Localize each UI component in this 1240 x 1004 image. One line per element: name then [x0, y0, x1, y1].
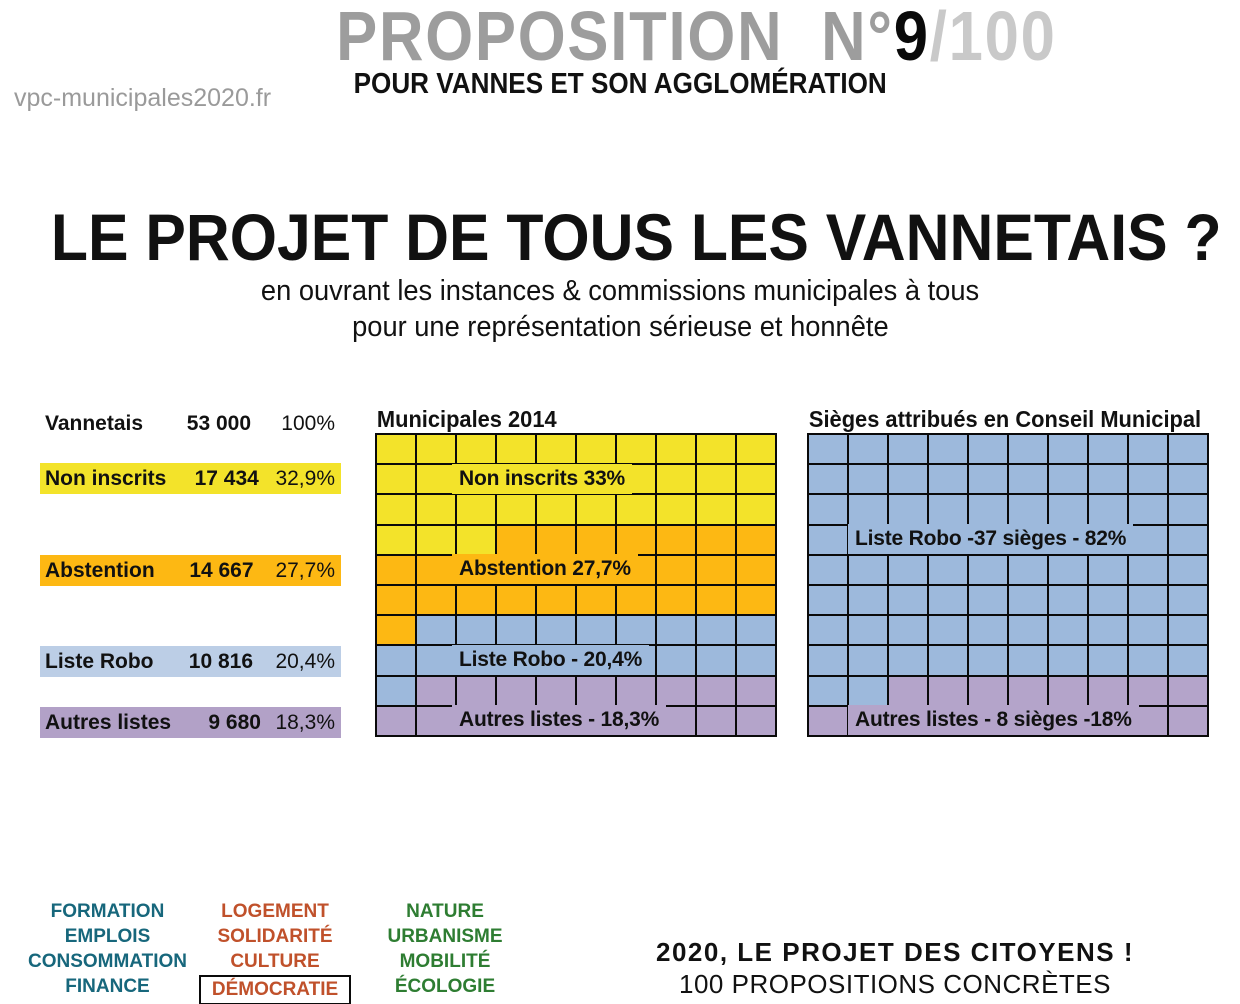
waffle-cell — [416, 555, 456, 585]
waffle-cell — [696, 585, 736, 615]
waffle-cell — [848, 615, 888, 645]
waffle-cell — [1048, 494, 1088, 524]
waffle-cell — [576, 434, 616, 464]
waffle-cell — [1128, 645, 1168, 675]
waffle-cell — [616, 525, 656, 555]
proposition-total: /100 — [930, 0, 1057, 75]
waffle-cell — [456, 494, 496, 524]
waffle-cell — [1048, 555, 1088, 585]
waffle-cell — [928, 615, 968, 645]
waffle-cell — [808, 706, 848, 736]
waffle-cell — [1168, 585, 1208, 615]
waffle-cell — [376, 676, 416, 706]
theme-item-boxed: DÉMOCRATIE — [199, 975, 351, 1004]
waffle-cell — [536, 525, 576, 555]
waffle-cell — [696, 525, 736, 555]
waffle-cell — [416, 494, 456, 524]
waffle-cell — [696, 615, 736, 645]
theme-column-environment: NATUREURBANISMEMOBILITÉÉCOLOGIE — [375, 899, 515, 999]
waffle-cell — [1168, 645, 1208, 675]
waffle-cell — [696, 645, 736, 675]
stat-label: Vannetais — [40, 412, 149, 436]
waffle-cell — [376, 464, 416, 494]
waffle-cell — [376, 615, 416, 645]
stat-label: Non inscrits — [40, 467, 166, 491]
waffle-cell — [1088, 645, 1128, 675]
theme-item: LOGEMENT — [221, 901, 329, 922]
waffle-cell — [1048, 615, 1088, 645]
infographic-poster: PROPOSITION N°9/100 POUR VANNES ET SON A… — [0, 0, 1240, 1004]
waffle-cell — [416, 434, 456, 464]
stat-percent: 27,7% — [254, 559, 341, 583]
waffle-cell — [456, 434, 496, 464]
waffle-cell — [1128, 464, 1168, 494]
waffle-cell — [1008, 645, 1048, 675]
waffle-cell — [888, 645, 928, 675]
theme-item: URBANISME — [387, 926, 502, 947]
waffle-cell — [456, 585, 496, 615]
waffle-cell — [1128, 525, 1168, 555]
website-url: vpc-municipales2020.fr — [14, 85, 271, 112]
waffle-series-label: Abstention 27,7% — [452, 554, 638, 584]
waffle-cell — [1008, 585, 1048, 615]
waffle-cell — [736, 525, 776, 555]
waffle-cell — [1048, 676, 1088, 706]
waffle-cell — [1048, 464, 1088, 494]
waffle-cell — [656, 434, 696, 464]
waffle-cell — [696, 464, 736, 494]
waffle-cell — [536, 615, 576, 645]
theme-column-economy: FORMATIONEMPLOISCONSOMMATIONFINANCE — [25, 899, 190, 999]
waffle-cell — [1008, 464, 1048, 494]
theme-column-society: LOGEMENTSOLIDARITÉCULTUREDÉMOCRATIE — [190, 899, 360, 1004]
waffle-cell — [1048, 585, 1088, 615]
waffle-cell — [736, 676, 776, 706]
stats-header-row: Vannetais53 000100% — [40, 408, 341, 439]
stat-percent: 32,9% — [259, 467, 341, 491]
waffle-cell — [1008, 676, 1048, 706]
waffle-cell — [1008, 555, 1048, 585]
waffle-cell — [928, 434, 968, 464]
waffle-chart-sieges-conseil-municipal: Sièges attribués en Conseil Municipal Li… — [807, 406, 1209, 737]
waffle-cell — [1128, 676, 1168, 706]
waffle-cell — [888, 585, 928, 615]
waffle-cell — [736, 645, 776, 675]
waffle-cell — [1088, 555, 1128, 585]
waffle-cell — [1048, 434, 1088, 464]
waffle-cell — [736, 706, 776, 736]
waffle-cell — [496, 525, 536, 555]
waffle-cell — [1088, 494, 1128, 524]
stat-value: 17 434 — [166, 467, 258, 491]
theme-item: MOBILITÉ — [400, 951, 491, 972]
page-subtitle-line1: en ouvrant les instances & commissions m… — [0, 274, 1240, 308]
waffle-cell — [496, 615, 536, 645]
waffle-cell — [968, 494, 1008, 524]
waffle-cell — [496, 494, 536, 524]
waffle-cell — [928, 645, 968, 675]
theme-item: NATURE — [406, 901, 484, 922]
waffle-chart-municipales-2014: Municipales 2014 Non inscrits 33%Abstent… — [375, 406, 777, 737]
waffle-cell — [416, 464, 456, 494]
waffle-cell — [1088, 464, 1128, 494]
waffle-cell — [1128, 585, 1168, 615]
waffle-cell — [616, 676, 656, 706]
theme-item: FORMATION — [51, 901, 165, 922]
waffle-cell — [888, 464, 928, 494]
proposition-heading: PROPOSITION N°9/100 — [153, 0, 1240, 72]
footer-slogan: 2020, LE PROJET DES CITOYENS ! 100 PROPO… — [640, 936, 1150, 999]
waffle-cell — [736, 615, 776, 645]
waffle-cell — [416, 706, 456, 736]
waffle-cell — [416, 676, 456, 706]
waffle-cell — [848, 585, 888, 615]
waffle-cell — [696, 706, 736, 736]
theme-item: CULTURE — [230, 951, 319, 972]
waffle-cell — [656, 676, 696, 706]
waffle-cell — [576, 494, 616, 524]
waffle-cell — [1088, 434, 1128, 464]
waffle-cell — [696, 434, 736, 464]
waffle-cell — [888, 615, 928, 645]
waffle-cell — [536, 585, 576, 615]
proposition-prefix: PROPOSITION N° — [336, 0, 894, 75]
waffle-cell — [616, 615, 656, 645]
waffle-cell — [376, 434, 416, 464]
waffle-cell — [1088, 676, 1128, 706]
stat-value: 9 680 — [171, 711, 261, 735]
page-title: LE PROJET DE TOUS LES VANNETAIS ? — [0, 203, 1240, 271]
theme-item: ÉCOLOGIE — [395, 976, 495, 997]
waffle-cell — [808, 676, 848, 706]
waffle-cell — [808, 615, 848, 645]
stat-label: Liste Robo — [40, 650, 154, 674]
waffle-cell — [888, 676, 928, 706]
waffle-cell — [848, 494, 888, 524]
waffle-cell — [656, 525, 696, 555]
waffle-cell — [808, 494, 848, 524]
chart-title: Sièges attribués en Conseil Municipal — [807, 406, 1189, 432]
stat-label: Autres listes — [40, 711, 171, 735]
waffle-cell — [576, 676, 616, 706]
waffle-cell — [656, 464, 696, 494]
stats-row: Liste Robo10 81620,4% — [40, 646, 341, 677]
waffle-cell — [1088, 585, 1128, 615]
waffle-cell — [696, 555, 736, 585]
waffle-cell — [1168, 706, 1208, 736]
waffle-cell — [496, 434, 536, 464]
waffle-series-label: Liste Robo - 20,4% — [452, 645, 649, 675]
waffle-cell — [416, 615, 456, 645]
waffle-cell — [1128, 615, 1168, 645]
waffle-cell — [848, 464, 888, 494]
stat-value: 10 816 — [154, 650, 254, 674]
waffle-cell — [376, 706, 416, 736]
waffle-series-label: Autres listes - 18,3% — [452, 705, 666, 735]
waffle-cell — [736, 464, 776, 494]
theme-item: CONSOMMATION — [28, 951, 187, 972]
slogan-line2: 100 PROPOSITIONS CONCRÈTES — [640, 969, 1150, 999]
waffle-cell — [1168, 494, 1208, 524]
waffle-series-label: Liste Robo -37 sièges - 82% — [848, 524, 1133, 554]
theme-item: FINANCE — [65, 976, 149, 997]
waffle-cell — [888, 434, 928, 464]
waffle-cell — [928, 676, 968, 706]
waffle-cell — [656, 615, 696, 645]
waffle-cell — [576, 525, 616, 555]
stat-value: 53 000 — [149, 412, 251, 436]
waffle-cell — [656, 585, 696, 615]
waffle-cell — [416, 645, 456, 675]
waffle-cell — [376, 525, 416, 555]
waffle-cell — [888, 494, 928, 524]
waffle-cell — [808, 645, 848, 675]
waffle-cell — [1088, 615, 1128, 645]
waffle-cell — [376, 494, 416, 524]
waffle-cell — [968, 676, 1008, 706]
waffle-cell — [808, 464, 848, 494]
waffle-cell — [536, 676, 576, 706]
waffle-cell — [968, 585, 1008, 615]
waffle-cell — [376, 585, 416, 615]
waffle-cell — [1168, 555, 1208, 585]
chart-title: Municipales 2014 — [375, 406, 757, 432]
waffle-cell — [736, 585, 776, 615]
waffle-cell — [1168, 464, 1208, 494]
waffle-cell — [656, 645, 696, 675]
waffle-cell — [696, 676, 736, 706]
waffle-cell — [656, 555, 696, 585]
waffle-cell — [808, 434, 848, 464]
waffle-cell — [736, 555, 776, 585]
stats-row: Autres listes9 68018,3% — [40, 707, 341, 738]
waffle-cell — [808, 585, 848, 615]
waffle-cell — [736, 434, 776, 464]
theme-item: SOLIDARITÉ — [217, 926, 332, 947]
waffle-cell — [456, 525, 496, 555]
waffle-cell — [1168, 434, 1208, 464]
waffle-cell — [656, 494, 696, 524]
waffle-cell — [928, 555, 968, 585]
waffle-cell — [1128, 555, 1168, 585]
waffle-cell — [416, 525, 456, 555]
waffle-cell — [496, 676, 536, 706]
waffle-cell — [376, 645, 416, 675]
waffle-cell — [696, 494, 736, 524]
waffle-cell — [616, 494, 656, 524]
waffle-series-label: Autres listes - 8 sièges -18% — [848, 705, 1139, 735]
waffle-cell — [576, 615, 616, 645]
waffle-cell — [968, 434, 1008, 464]
waffle-grid: Non inscrits 33%Abstention 27,7%Liste Ro… — [375, 433, 777, 737]
waffle-cell — [616, 585, 656, 615]
waffle-cell — [848, 676, 888, 706]
waffle-cell — [928, 585, 968, 615]
stat-label: Abstention — [40, 559, 155, 583]
waffle-cell — [576, 585, 616, 615]
waffle-cell — [888, 555, 928, 585]
waffle-cell — [928, 494, 968, 524]
slogan-line1: 2020, LE PROJET DES CITOYENS ! — [640, 936, 1150, 969]
waffle-cell — [456, 676, 496, 706]
waffle-cell — [968, 555, 1008, 585]
waffle-cell — [536, 434, 576, 464]
stat-percent: 18,3% — [261, 711, 341, 735]
waffle-cell — [808, 555, 848, 585]
waffle-cell — [536, 494, 576, 524]
waffle-cell — [1168, 525, 1208, 555]
stat-percent: 100% — [251, 412, 341, 436]
waffle-cell — [968, 464, 1008, 494]
waffle-cell — [848, 434, 888, 464]
waffle-cell — [1168, 615, 1208, 645]
waffle-cell — [848, 555, 888, 585]
waffle-cell — [416, 585, 456, 615]
waffle-cell — [968, 615, 1008, 645]
waffle-cell — [1008, 434, 1048, 464]
proposition-number: 9 — [894, 0, 930, 75]
waffle-grid: Liste Robo -37 sièges - 82%Autres listes… — [807, 433, 1209, 737]
waffle-series-label: Non inscrits 33% — [452, 464, 632, 494]
page-subtitle-line2: pour une représentation sérieuse et honn… — [0, 310, 1240, 344]
waffle-cell — [1128, 494, 1168, 524]
stats-row: Abstention14 66727,7% — [40, 555, 341, 586]
stat-value: 14 667 — [155, 559, 254, 583]
waffle-cell — [496, 585, 536, 615]
stat-percent: 20,4% — [253, 650, 341, 674]
waffle-cell — [616, 434, 656, 464]
waffle-cell — [376, 555, 416, 585]
waffle-cell — [968, 645, 1008, 675]
waffle-cell — [1048, 645, 1088, 675]
waffle-cell — [848, 645, 888, 675]
waffle-cell — [736, 494, 776, 524]
waffle-cell — [1168, 676, 1208, 706]
stats-row: Non inscrits17 43432,9% — [40, 463, 341, 494]
waffle-cell — [1008, 615, 1048, 645]
waffle-cell — [456, 615, 496, 645]
waffle-cell — [1128, 434, 1168, 464]
waffle-cell — [1008, 494, 1048, 524]
waffle-cell — [808, 525, 848, 555]
waffle-cell — [928, 464, 968, 494]
theme-item: EMPLOIS — [65, 926, 151, 947]
